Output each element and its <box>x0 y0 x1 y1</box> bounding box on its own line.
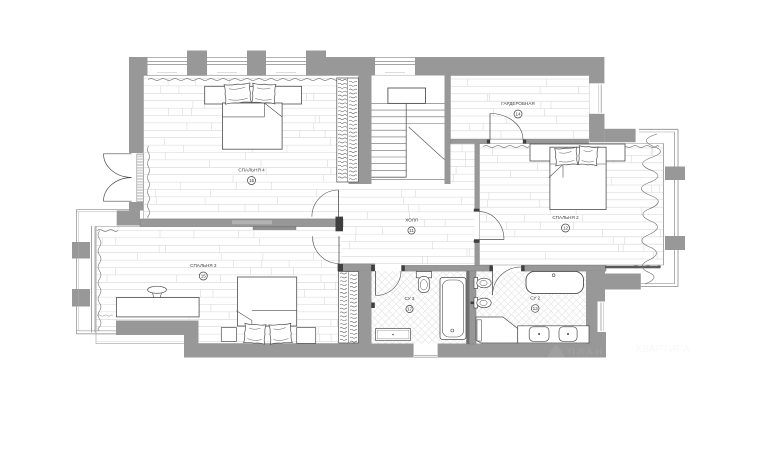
svg-text:СУ 3: СУ 3 <box>405 296 415 301</box>
svg-text:СПАЛЬНЯ 2: СПАЛЬНЯ 2 <box>552 215 579 220</box>
svg-text:17: 17 <box>407 307 413 312</box>
svg-text:ХОЛЛ: ХОЛЛ <box>405 218 417 223</box>
svg-text:КВАРТИРА: КВАРТИРА <box>636 343 690 355</box>
svg-text:13: 13 <box>533 306 539 311</box>
svg-text:СПАЛЬНЯ 3: СПАЛЬНЯ 3 <box>190 263 217 268</box>
svg-text:12: 12 <box>563 226 569 231</box>
svg-text:14: 14 <box>515 112 521 117</box>
svg-text:ГАРДЕРОБНАЯ: ГАРДЕРОБНАЯ <box>501 101 534 106</box>
svg-text:11: 11 <box>409 228 414 233</box>
svg-text:СПАЛЬНЯ 4: СПАЛЬНЯ 4 <box>238 168 265 173</box>
svg-text:15: 15 <box>201 274 207 279</box>
svg-text:СУ 2: СУ 2 <box>530 296 540 301</box>
svg-text:П Л А Н: П Л А Н <box>568 347 602 358</box>
svg-text:16: 16 <box>249 178 255 183</box>
